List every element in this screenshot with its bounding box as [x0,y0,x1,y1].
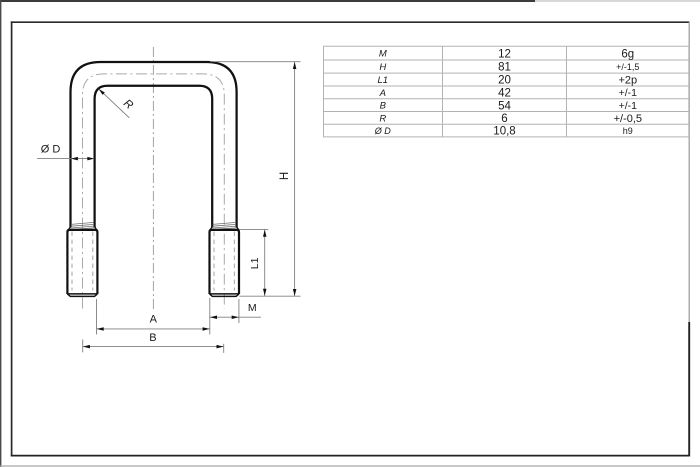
svg-text:6g: 6g [621,48,634,60]
svg-text:+2p: +2p [618,75,637,87]
svg-text:B: B [380,101,387,112]
svg-text:R: R [379,113,386,124]
svg-text:6: 6 [501,113,507,125]
svg-text:42: 42 [498,88,511,100]
svg-text:20: 20 [498,75,511,87]
svg-text:A: A [379,88,386,99]
svg-text:M: M [379,49,387,60]
svg-text:81: 81 [498,62,511,74]
svg-text:Ø D: Ø D [374,126,392,136]
svg-text:A: A [150,314,158,326]
svg-text:12: 12 [498,48,511,60]
svg-text:h9: h9 [623,126,633,136]
svg-text:+/-1: +/-1 [619,100,638,112]
svg-text:L1: L1 [249,257,261,269]
svg-text:+/-1,5: +/-1,5 [616,62,639,72]
svg-text:10,8: 10,8 [493,126,515,138]
svg-text:R: R [121,97,135,112]
svg-text:B: B [149,332,156,344]
svg-text:+/-0,5: +/-0,5 [614,113,642,125]
svg-text:Ø D: Ø D [41,143,61,155]
svg-text:M: M [248,302,257,314]
svg-text:+/-1: +/-1 [619,87,638,99]
svg-text:54: 54 [498,100,511,112]
svg-text:H: H [379,62,386,73]
svg-text:H: H [279,172,291,180]
svg-text:L1: L1 [378,75,389,86]
